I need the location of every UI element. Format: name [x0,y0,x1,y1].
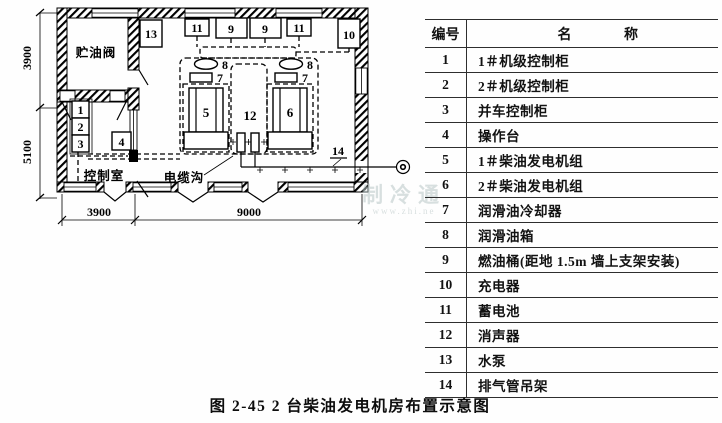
window-right-wall [356,68,367,94]
dim-9000-bottom: 9000 [237,205,261,219]
callout-10: 10 [343,28,355,42]
callout-8b: 8 [307,58,313,72]
door-swing-south-2 [178,192,208,202]
callout-13: 13 [145,27,157,41]
dim-3900-bottom: 3900 [87,205,111,219]
window-bottom-1 [64,183,96,191]
row-name: 润滑油冷却器 [467,198,719,223]
plus-marks [230,139,267,145]
row-id: 2 [425,73,467,98]
oil-tank-8a [195,59,218,69]
row-name: 1＃机级控制柜 [467,48,719,73]
dim-3900-left: 3900 [20,46,34,70]
row-name: 燃油桶(距地 1.5m 墙上支架安装) [467,248,719,273]
row-name: 2＃柴油发电机组 [467,173,719,198]
row-id: 7 [425,198,467,223]
hanger-marks [257,167,363,173]
window-bottom-4 [288,183,354,191]
oil-tank-8b [280,59,303,69]
table-row: 11蓄电池 [425,298,718,323]
row-name: 消声器 [467,323,719,348]
callout-1: 1 [78,103,84,117]
callout-11a: 11 [191,21,202,35]
silencer-a [237,133,245,152]
callout-4: 4 [119,135,125,149]
row-id: 5 [425,148,467,173]
callout-14: 14 [332,144,344,158]
table-header-row: 编号 名 称 [425,20,718,48]
dimension-left: 3900 5100 [20,9,57,201]
wall-post [129,150,138,162]
generator-set-2: 6 [267,84,313,152]
row-name: 充电器 [467,273,719,298]
row-name: 2＃机级控制柜 [467,73,719,98]
row-id: 10 [425,273,467,298]
row-id: 6 [425,173,467,198]
row-id: 13 [425,348,467,373]
callout-3: 3 [78,137,84,151]
table-row: 62＃柴油发电机组 [425,173,718,198]
window-top-1 [92,9,138,17]
row-name: 操作台 [467,123,719,148]
room-label-oil: 贮油阀 [75,45,117,60]
label-cable-trench: 电缆沟 [164,170,205,185]
silencer-b [251,133,259,152]
table-row: 12消声器 [425,323,718,348]
oil-cooler-7b [275,73,297,82]
row-name: 蓄电池 [467,298,719,323]
row-name: 润滑油箱 [467,223,719,248]
oil-cooler-7a [190,73,212,82]
header-name: 名 称 [467,20,719,48]
table-row: 10充电器 [425,273,718,298]
callout-2: 2 [78,120,84,134]
callout-9a: 9 [228,22,234,36]
equipment-table: 编号 名 称 11＃机级控制柜 22＃机级控制柜 3并车控制柜 4操作台 51＃… [425,19,718,398]
table-row: 7润滑油冷却器 [425,198,718,223]
table-row: 4操作台 [425,123,718,148]
table-row: 11＃机级控制柜 [425,48,718,73]
figure-caption: 图 2-45 2 台柴油发电机房布置示意图 [0,394,700,416]
row-id: 8 [425,223,467,248]
door-leaf-oil-right [117,102,126,120]
callout-7b: 7 [302,71,308,85]
exhaust-outlet-icon [397,161,410,174]
row-id: 9 [425,248,467,273]
row-name: 水泵 [467,348,719,373]
callout-9b: 9 [262,22,268,36]
table-row: 8润滑油箱 [425,223,718,248]
dimension-bottom: 3900 9000 [58,194,366,226]
generator-set-1: 5 [183,84,229,152]
callout-11b: 11 [293,21,304,35]
header-name-char-2: 称 [624,24,639,44]
callout-12: 12 [244,108,257,123]
row-name: 1＃柴油发电机组 [467,148,719,173]
dim-5100-left: 5100 [20,140,34,164]
table-row: 51＃柴油发电机组 [425,148,718,173]
row-name: 并车控制柜 [467,98,719,123]
row-id: 1 [425,48,467,73]
table-row: 3并车控制柜 [425,98,718,123]
header-name-char-1: 名 [558,24,573,44]
callout-7a: 7 [217,71,223,85]
window-bottom-3 [214,183,242,191]
lube-units: 8 8 7 7 [190,58,313,85]
equipment-top-row: 13 11 9 9 11 10 [140,18,360,48]
window-top-2 [185,9,235,17]
callout-5: 5 [203,105,210,120]
room-label-control: 控制室 [84,168,125,183]
silencers-and-exhaust: 12 14 [230,108,410,174]
door-swing-south-3 [248,192,278,202]
row-id: 12 [425,323,467,348]
row-id: 4 [425,123,467,148]
floor-plan: 13 11 9 9 11 10 8 8 7 7 5 6 [0,0,422,240]
table-row: 9燃油桶(距地 1.5m 墙上支架安装) [425,248,718,273]
window-top-3 [276,9,322,17]
table-row: 22＃机级控制柜 [425,73,718,98]
door-swing-south-1 [104,192,126,201]
row-id: 3 [425,98,467,123]
callout-6: 6 [287,105,294,120]
row-id: 11 [425,298,467,323]
control-room-equipment: 1 2 3 4 [70,99,131,154]
cable-trench-leader [204,156,233,175]
door-leaf-machine-room [139,70,148,85]
callout-8a: 8 [222,58,228,72]
table-row: 13水泵 [425,348,718,373]
header-id: 编号 [425,20,467,48]
